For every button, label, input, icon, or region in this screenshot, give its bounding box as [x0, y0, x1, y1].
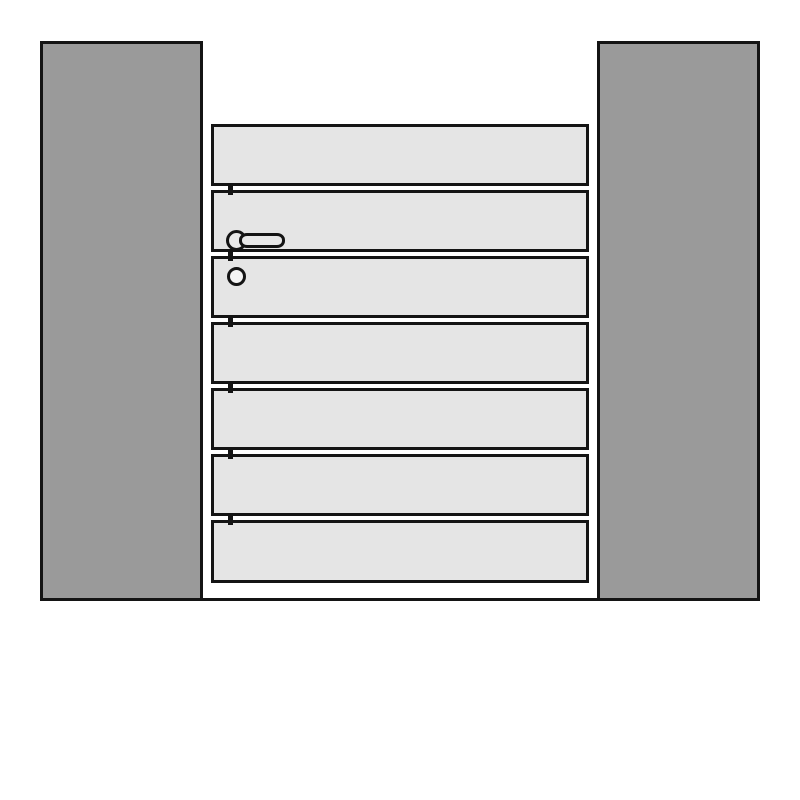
board-joint-tick: [228, 317, 233, 327]
ground-line: [203, 598, 597, 601]
right-post: [597, 41, 760, 601]
left-post: [40, 41, 203, 601]
board-joint-tick: [228, 449, 233, 459]
gate-drawing-canvas: [0, 0, 800, 800]
gate-board: [211, 124, 589, 186]
board-joint-tick: [228, 251, 233, 261]
gate-board: [211, 256, 589, 318]
lever-handle-icon: [239, 233, 285, 248]
gate-board: [211, 454, 589, 516]
gate-board: [211, 322, 589, 384]
gate-board: [211, 388, 589, 450]
gate-board: [211, 520, 589, 583]
board-joint-tick: [228, 185, 233, 195]
board-joint-tick: [228, 515, 233, 525]
gate-leaf: [211, 124, 589, 583]
board-joint-tick: [228, 383, 233, 393]
lock-cylinder-icon: [227, 267, 246, 286]
